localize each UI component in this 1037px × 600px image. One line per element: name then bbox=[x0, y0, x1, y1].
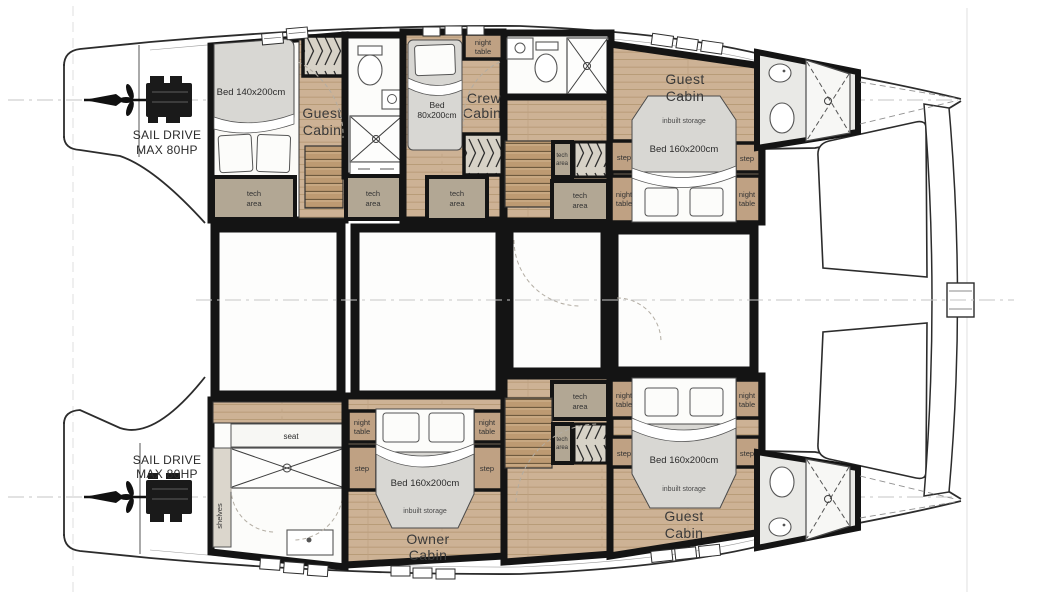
shelves-label: shelves bbox=[215, 503, 224, 529]
sink-faucet bbox=[783, 70, 786, 73]
bridge-deck-rooms bbox=[215, 228, 754, 395]
window-icon bbox=[467, 26, 484, 35]
toilet-tank-icon bbox=[536, 42, 558, 50]
window-icon bbox=[307, 564, 328, 576]
foredeck-platform-starboard bbox=[818, 323, 927, 478]
tech-area-label: area bbox=[572, 201, 588, 210]
port-hull-interior: Bed 140x200cm Guest Cabin tech area tech… bbox=[211, 32, 858, 222]
night-table-label: table bbox=[475, 47, 491, 56]
sink-icon bbox=[382, 90, 402, 109]
tech-area bbox=[213, 177, 295, 219]
shelves bbox=[213, 448, 231, 547]
pillow bbox=[256, 134, 290, 172]
step-label: step bbox=[480, 464, 494, 473]
salon-room-aft-port bbox=[215, 228, 341, 395]
toilet-icon bbox=[770, 103, 794, 133]
step-label: step bbox=[617, 153, 631, 162]
window-icon bbox=[391, 566, 410, 576]
salon-room-forward bbox=[614, 230, 754, 371]
catamaran-floorplan: SAIL DRIVE MAX 80HP SAIL DRIVE MAX 80HP … bbox=[0, 0, 1037, 600]
tech-area-label: tech bbox=[556, 153, 567, 159]
night-table-label: night bbox=[479, 418, 496, 427]
window-icon bbox=[698, 544, 720, 557]
night-table-label: table bbox=[616, 400, 632, 409]
bath-counter bbox=[350, 162, 402, 176]
inbuilt-storage-label: inbuilt storage bbox=[662, 486, 706, 493]
night-table-label: night bbox=[616, 391, 633, 400]
pillow bbox=[383, 413, 419, 442]
wardrobe-icon bbox=[464, 134, 503, 175]
tech-area-label: area bbox=[556, 161, 569, 167]
engine-port: SAIL DRIVE MAX 80HP bbox=[84, 76, 201, 157]
tech-area-label: area bbox=[246, 199, 262, 208]
engine-detail bbox=[166, 117, 180, 123]
propeller-cone-icon bbox=[84, 491, 124, 503]
bed-size-label: Bed 140x200cm bbox=[217, 87, 286, 98]
night-table-label: night bbox=[739, 190, 756, 199]
tech-area-small bbox=[553, 142, 572, 177]
cabin-name-aft-guest-line2: Cabin bbox=[303, 122, 342, 138]
inbuilt-storage-label: inbuilt storage bbox=[403, 508, 447, 515]
sink-icon bbox=[287, 530, 333, 555]
pillow bbox=[690, 188, 723, 216]
tech-area-label: area bbox=[449, 199, 465, 208]
shower-icon bbox=[806, 459, 850, 540]
propeller-blade-icon bbox=[119, 494, 133, 500]
step-label: step bbox=[355, 464, 369, 473]
night-table-label: table bbox=[479, 427, 495, 436]
window-icon bbox=[413, 568, 432, 578]
window-icon bbox=[260, 558, 281, 570]
night-table-label: table bbox=[739, 400, 755, 409]
tech-area-label: area bbox=[572, 402, 588, 411]
window-icon bbox=[284, 562, 305, 574]
propeller-blade-icon bbox=[119, 97, 133, 103]
toilet-tank-icon bbox=[358, 46, 382, 55]
sail-drive-label-port-line1: SAIL DRIVE bbox=[133, 128, 202, 142]
step-label: step bbox=[740, 154, 754, 163]
bed-size-label-line2: 80x200cm bbox=[417, 110, 456, 120]
cabin-name-crew-line1: Crew bbox=[467, 90, 502, 106]
night-table-label: table bbox=[616, 199, 632, 208]
hatch-window-group-owner bbox=[391, 566, 455, 579]
seat-label: seat bbox=[283, 432, 299, 441]
cabin-name-owner-line1: Owner bbox=[406, 531, 449, 547]
sink-icon bbox=[769, 518, 791, 536]
cabin-name-fwd-guest-starboard-line1: Guest bbox=[664, 508, 703, 524]
bathroom-floor-strip bbox=[213, 402, 343, 423]
engine-detail bbox=[148, 117, 158, 123]
toilet-icon bbox=[535, 54, 557, 82]
sink-faucet bbox=[783, 524, 786, 527]
engine-detail bbox=[170, 76, 182, 84]
pillow bbox=[218, 134, 253, 173]
inbuilt-storage-label: inbuilt storage bbox=[662, 118, 706, 125]
wardrobe-icon bbox=[574, 142, 607, 177]
window-icon bbox=[436, 569, 455, 579]
hatch-window-group-crew bbox=[423, 26, 484, 36]
tech-area-label: tech bbox=[556, 437, 567, 443]
window-icon bbox=[423, 27, 440, 36]
sink-faucet bbox=[307, 538, 312, 543]
wardrobe-icon bbox=[574, 424, 607, 463]
toilet-icon bbox=[358, 55, 382, 85]
cabin-name-crew-line2: Cabin bbox=[463, 105, 502, 121]
window-icon bbox=[675, 547, 697, 560]
night-table-label: night bbox=[475, 38, 492, 47]
engine-block-icon bbox=[146, 83, 192, 117]
engine-detail bbox=[170, 514, 182, 522]
sink-icon bbox=[769, 64, 791, 82]
cabin-name-fwd-guest-starboard-line2: Cabin bbox=[665, 525, 704, 541]
tech-area-label: tech bbox=[573, 392, 587, 401]
window-icon bbox=[651, 33, 673, 47]
tech-area-label: tech bbox=[247, 189, 261, 198]
floorplan-drawing: SAIL DRIVE MAX 80HP SAIL DRIVE MAX 80HP … bbox=[0, 0, 1037, 600]
salon-room-aft-starboard bbox=[355, 228, 500, 395]
window-icon bbox=[701, 40, 723, 54]
tech-area-small bbox=[553, 424, 572, 463]
stairs-icon bbox=[305, 146, 343, 208]
step-label: step bbox=[740, 449, 754, 458]
cabin-name-aft-guest-line1: Guest bbox=[302, 105, 341, 121]
stairs-icon bbox=[505, 141, 552, 207]
starboard-hull-interior: seat shelves night table night table ste… bbox=[211, 376, 858, 567]
pillow bbox=[429, 413, 464, 442]
window-icon bbox=[445, 26, 462, 35]
stairs-icon bbox=[505, 398, 552, 468]
step-label: step bbox=[617, 449, 631, 458]
tech-area-label: area bbox=[556, 445, 569, 451]
sail-drive-label-port-line2: MAX 80HP bbox=[136, 143, 198, 157]
bed-size-label: Bed 160x200cm bbox=[650, 455, 719, 466]
pillow bbox=[690, 388, 723, 416]
window-icon bbox=[676, 37, 698, 51]
pillow bbox=[414, 44, 455, 75]
sail-drive-label-starboard-line1: SAIL DRIVE bbox=[133, 453, 202, 467]
bed-size-label: Bed 160x200cm bbox=[391, 478, 460, 489]
toilet-icon bbox=[770, 467, 794, 497]
night-table-label: table bbox=[739, 199, 755, 208]
night-table-label: night bbox=[354, 418, 371, 427]
tech-area-label: tech bbox=[573, 191, 587, 200]
starboard-hull-inner-stern-edge bbox=[64, 377, 205, 430]
wardrobe-icon bbox=[303, 36, 345, 76]
bed-size-label-line1: Bed bbox=[429, 100, 444, 110]
bed-size-label: Bed 160x200cm bbox=[650, 144, 719, 155]
window-icon bbox=[651, 549, 673, 562]
propeller-cone-icon bbox=[84, 94, 124, 106]
pillow bbox=[645, 388, 678, 416]
night-table-label: night bbox=[739, 391, 756, 400]
pillow bbox=[645, 188, 678, 216]
engine-detail bbox=[150, 514, 164, 522]
bed-aft-guest bbox=[214, 39, 294, 129]
cabin-name-owner-line2: Cabin bbox=[409, 547, 448, 563]
cabin-name-fwd-guest-port-line1: Guest bbox=[665, 71, 704, 87]
engine-detail bbox=[150, 76, 164, 84]
night-table-label: table bbox=[354, 427, 370, 436]
engine-starboard: SAIL DRIVE MAX 80HP bbox=[84, 453, 201, 522]
foredeck-platform-port bbox=[818, 122, 927, 277]
night-table-label: night bbox=[616, 190, 633, 199]
tech-area-label: tech bbox=[366, 189, 380, 198]
cabin-name-fwd-guest-port-line2: Cabin bbox=[666, 88, 705, 104]
bed-fwd-guest-port bbox=[632, 96, 736, 172]
tech-area-label: tech bbox=[450, 189, 464, 198]
sail-drive-label-starboard-line2: MAX 80HP bbox=[136, 467, 198, 481]
tech-area-label: area bbox=[365, 199, 381, 208]
engine-block-icon bbox=[146, 480, 192, 514]
sink-icon bbox=[507, 38, 533, 59]
